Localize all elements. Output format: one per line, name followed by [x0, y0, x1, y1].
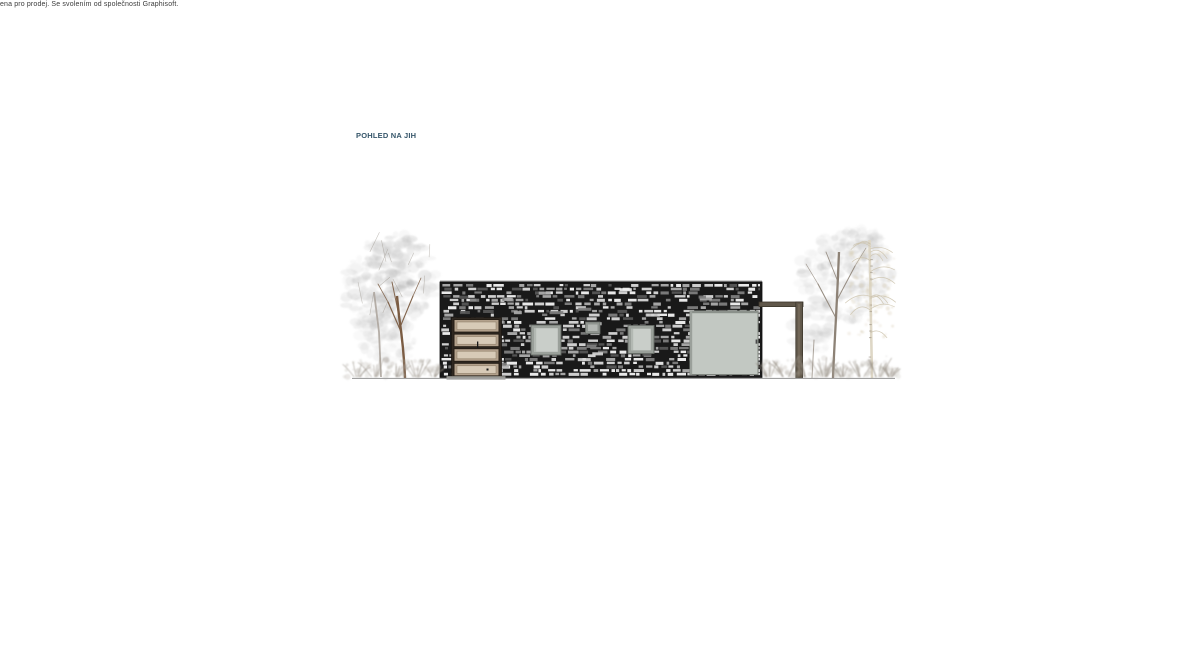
window-right [628, 326, 654, 354]
south-elevation-drawing [0, 0, 1180, 664]
vent-window [586, 322, 601, 334]
door-handle [477, 342, 478, 349]
tree-left [340, 230, 441, 367]
drawing-sheet: ena pro prodej. Se svolením od společnos… [0, 0, 1180, 664]
glazing-handle [756, 340, 758, 344]
window-left [531, 325, 561, 355]
glazed-sliding-door [690, 311, 758, 375]
entrance-door [452, 318, 502, 377]
